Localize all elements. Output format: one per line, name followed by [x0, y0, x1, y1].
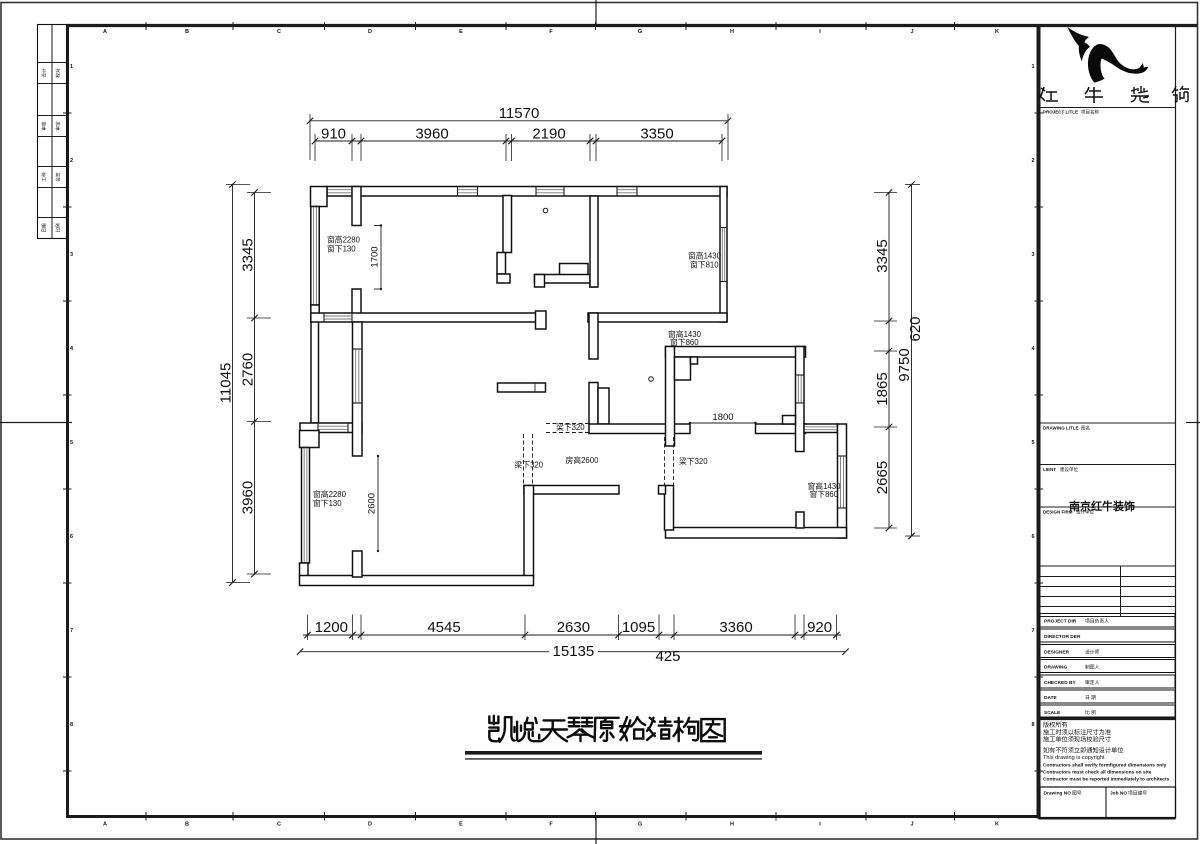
svg-text:窗高2280: 窗高2280 — [327, 235, 361, 245]
svg-text:PROJECT LITLE: PROJECT LITLE — [1043, 110, 1078, 115]
svg-text:设计师: 设计师 — [1085, 649, 1100, 656]
svg-text:DIRECTOR DER: DIRECTOR DER — [1044, 634, 1081, 640]
svg-text:This drawing is copyright: This drawing is copyright — [1043, 755, 1105, 761]
svg-text:审定人: 审定人 — [1085, 679, 1100, 686]
svg-text:房高2600: 房高2600 — [566, 455, 600, 465]
svg-text:DESIGNER: DESIGNER — [1044, 650, 1070, 656]
svg-text:施工时须以标注尺寸为准: 施工时须以标注尺寸为准 — [1043, 729, 1111, 737]
svg-text:梁下320: 梁下320 — [556, 423, 585, 432]
svg-text:5: 5 — [70, 440, 73, 446]
svg-text:B: B — [185, 29, 189, 35]
svg-text:6: 6 — [70, 534, 73, 540]
svg-text:E: E — [459, 822, 463, 828]
svg-text:A: A — [103, 822, 107, 828]
svg-text:设计: 设计 — [41, 68, 48, 78]
svg-text:2: 2 — [1031, 158, 1034, 164]
svg-text:项目名称: 项目名称 — [1081, 109, 1099, 116]
svg-text:B: B — [185, 822, 189, 828]
svg-text:425: 425 — [655, 648, 680, 665]
svg-text:2665: 2665 — [874, 461, 891, 494]
svg-text:施工单位须现场校验尺寸: 施工单位须现场校验尺寸 — [1043, 736, 1111, 744]
svg-text:审定: 审定 — [55, 121, 62, 131]
svg-text:C: C — [277, 29, 281, 35]
svg-text:南京红牛装饰: 南京红牛装饰 — [1069, 499, 1135, 513]
svg-text:窗下130: 窗下130 — [327, 244, 356, 254]
svg-text:会签: 会签 — [55, 172, 62, 182]
svg-text:比例: 比例 — [55, 223, 62, 233]
svg-text:11045: 11045 — [218, 363, 235, 404]
svg-text:Drawing NO: Drawing NO — [1044, 791, 1072, 797]
svg-text:3: 3 — [1031, 252, 1034, 258]
svg-text:DATE: DATE — [1044, 695, 1058, 701]
svg-text:G: G — [638, 29, 642, 35]
svg-text:3345: 3345 — [874, 239, 891, 272]
svg-text:工种: 工种 — [41, 172, 48, 182]
svg-text:SCALE: SCALE — [1044, 710, 1061, 716]
svg-text:D: D — [368, 822, 372, 828]
svg-text:3350: 3350 — [640, 126, 673, 143]
svg-text:如有不符须立即通知设计单位: 如有不符须立即通知设计单位 — [1043, 747, 1123, 755]
svg-text:11570: 11570 — [499, 105, 540, 122]
svg-text:3960: 3960 — [415, 126, 448, 143]
svg-text:K: K — [995, 822, 999, 828]
svg-text:Contractor must be reported im: Contractor must be reported immediately … — [1043, 777, 1170, 783]
svg-text:窗下860: 窗下860 — [810, 489, 839, 499]
svg-text:审核: 审核 — [41, 121, 48, 131]
svg-text:9750: 9750 — [896, 348, 913, 381]
svg-text:H: H — [730, 29, 734, 35]
svg-text:制图人: 制图人 — [1085, 664, 1100, 671]
svg-text:校对: 校对 — [55, 68, 62, 78]
svg-text:日 期: 日 期 — [1085, 695, 1096, 701]
svg-text:1865: 1865 — [874, 372, 891, 405]
svg-text:1095: 1095 — [622, 619, 655, 636]
svg-text:窗下860: 窗下860 — [670, 337, 699, 347]
svg-text:910: 910 — [321, 126, 346, 143]
svg-text:4545: 4545 — [427, 619, 460, 636]
svg-text:DRAWING LITLE: DRAWING LITLE — [1043, 426, 1079, 431]
svg-text:1700: 1700 — [370, 246, 381, 267]
svg-text:2630: 2630 — [557, 619, 590, 636]
svg-text:A: A — [103, 29, 107, 35]
svg-text:5: 5 — [1031, 440, 1034, 446]
svg-text:窗高2280: 窗高2280 — [313, 489, 347, 499]
svg-text:J: J — [910, 822, 913, 828]
svg-text:3345: 3345 — [240, 238, 257, 271]
svg-text:3360: 3360 — [719, 619, 752, 636]
svg-text:2600: 2600 — [367, 493, 378, 514]
svg-text:15135: 15135 — [553, 643, 595, 660]
svg-text:620: 620 — [907, 316, 924, 341]
svg-text:版权所有: 版权所有 — [1043, 721, 1068, 729]
svg-text:窗下130: 窗下130 — [313, 498, 342, 508]
svg-text:D: D — [368, 29, 372, 35]
svg-text:G: G — [638, 822, 642, 828]
svg-text:Job NO: Job NO — [1110, 791, 1127, 797]
svg-text:LIENT: LIENT — [1043, 467, 1056, 472]
svg-text:1: 1 — [70, 64, 73, 70]
svg-text:8: 8 — [1031, 722, 1034, 728]
svg-text:DRAWING: DRAWING — [1044, 665, 1067, 671]
svg-text:7: 7 — [1031, 628, 1034, 634]
svg-text:图号: 图号 — [1072, 791, 1082, 797]
svg-text:PROJECT DIR: PROJECT DIR — [1044, 619, 1077, 625]
svg-text:项目编号: 项目编号 — [1128, 790, 1147, 797]
svg-text:920: 920 — [807, 619, 832, 636]
svg-text:建设单位: 建设单位 — [1060, 466, 1078, 473]
svg-text:项目负责人: 项目负责人 — [1085, 618, 1109, 625]
svg-text:C: C — [277, 822, 281, 828]
svg-text:1: 1 — [1031, 64, 1034, 70]
svg-text:6: 6 — [1031, 534, 1034, 540]
svg-text:J: J — [910, 29, 913, 35]
svg-text:3960: 3960 — [240, 481, 257, 514]
svg-text:梁下320: 梁下320 — [679, 457, 708, 466]
svg-text:Contractors shall verify formf: Contractors shall verify formfigured dim… — [1043, 763, 1167, 769]
svg-text:CHECKED BY: CHECKED BY — [1044, 680, 1077, 686]
svg-text:2190: 2190 — [532, 126, 565, 143]
svg-text:2760: 2760 — [240, 353, 257, 386]
svg-text:1800: 1800 — [712, 412, 733, 423]
svg-text:8: 8 — [70, 722, 73, 728]
svg-text:窗下810: 窗下810 — [690, 260, 719, 270]
svg-text:2: 2 — [70, 158, 73, 164]
svg-text:3: 3 — [70, 252, 73, 258]
svg-text:7: 7 — [70, 628, 73, 634]
svg-text:窗高1430: 窗高1430 — [688, 251, 722, 261]
svg-text:梁下320: 梁下320 — [515, 461, 544, 470]
svg-text:H: H — [730, 822, 734, 828]
svg-text:E: E — [459, 29, 463, 35]
svg-text:Contractors must check all dim: Contractors must check all dimensions on… — [1043, 770, 1152, 776]
svg-text:K: K — [995, 29, 999, 35]
svg-text:比 例: 比 例 — [1085, 709, 1096, 716]
svg-text:图名: 图名 — [1081, 425, 1090, 432]
svg-text:1200: 1200 — [315, 619, 348, 636]
